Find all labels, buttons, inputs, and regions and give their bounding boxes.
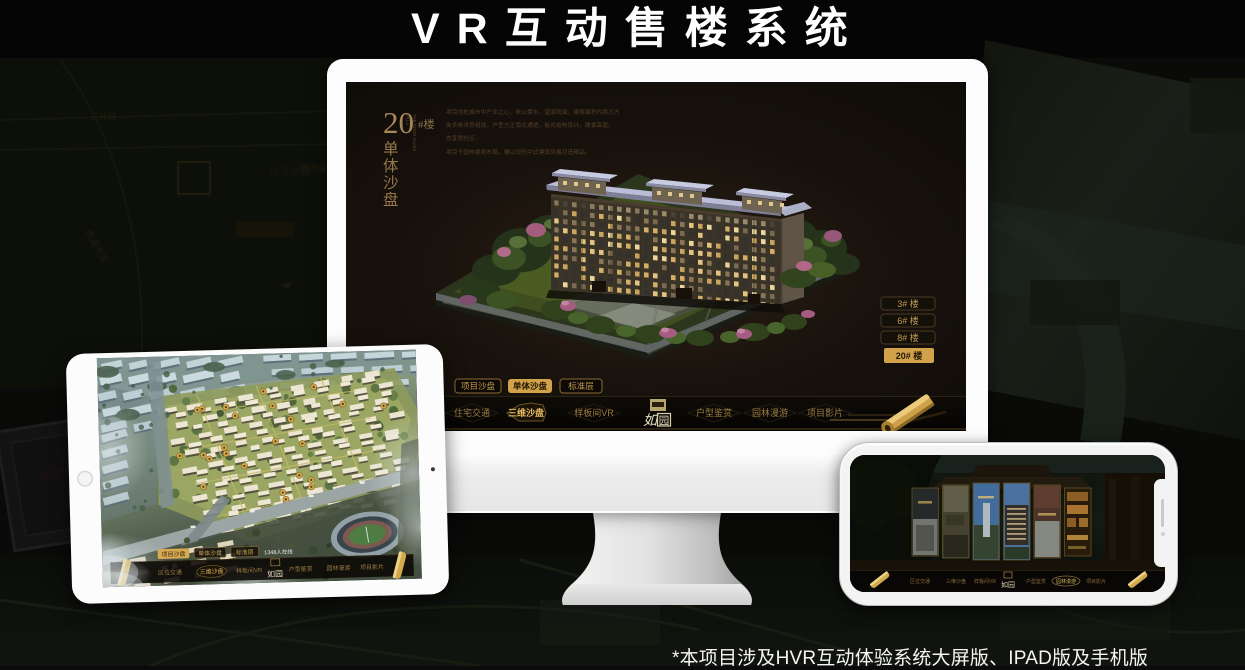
svg-text:3# 楼: 3# 楼 [897,298,919,309]
svg-text:#楼: #楼 [418,117,435,131]
svg-text:园林漫游: 园林漫游 [752,407,788,418]
svg-text:20# 楼: 20# 楼 [896,350,923,361]
svg-text:三维沙盘: 三维沙盘 [508,407,544,418]
svg-text:三环线: 三环线 [90,111,117,122]
svg-text:6# 楼: 6# 楼 [897,315,919,326]
svg-text:标准层: 标准层 [568,381,594,391]
svg-text:户型鉴赏: 户型鉴赏 [1026,578,1046,585]
svg-text:样板间VR: 样板间VR [974,578,996,585]
svg-text:园: 园 [659,415,670,427]
svg-text:如园: 如园 [1001,580,1015,589]
svg-text:单体沙盘: 单体沙盘 [513,381,548,391]
svg-text:项目影片: 项目影片 [807,407,843,418]
svg-text:住宅交通: 住宅交通 [454,407,490,418]
svg-text:园林漫游: 园林漫游 [1056,578,1076,585]
svg-text:如园: 如园 [267,568,283,578]
svg-text:VILLA: VILLA [405,114,410,126]
svg-text:如: 如 [643,413,659,429]
svg-text:项目沙盘: 项目沙盘 [461,381,496,391]
svg-text:态宜居社区。: 态宜居社区。 [446,134,481,142]
svg-text:沙: 沙 [383,175,399,192]
svg-text:项目地处城市中产业之心，依山傍水，望湖观澜，建筑面积约两万方: 项目地处城市中产业之心，依山傍水，望湖观澜，建筑面积约两万方 [446,108,620,116]
svg-text:区位交通: 区位交通 [910,578,930,585]
svg-text:盘: 盘 [383,190,399,209]
svg-text:户型鉴赏: 户型鉴赏 [696,407,732,418]
svg-text:THE GOOD CLASS: THE GOOD CLASS [412,114,417,151]
svg-text:样板间VR: 样板间VR [574,407,614,418]
svg-text:单: 单 [383,140,399,158]
svg-text:项目影片: 项目影片 [1086,578,1106,585]
svg-text:三维沙盘: 三维沙盘 [946,578,966,585]
svg-text:由多栋洋房组成，户型方正南北通透，板式结构设计，瞰景高层。: 由多栋洋房组成，户型方正南北通透，板式结构设计，瞰景高层。 [446,121,614,129]
svg-text:项目于园林景观布局，辅以现代中式建筑风格打造精品。: 项目于园林景观布局，辅以现代中式建筑风格打造精品。 [446,148,591,156]
svg-text:体: 体 [383,157,399,175]
svg-text:8# 楼: 8# 楼 [897,332,919,343]
